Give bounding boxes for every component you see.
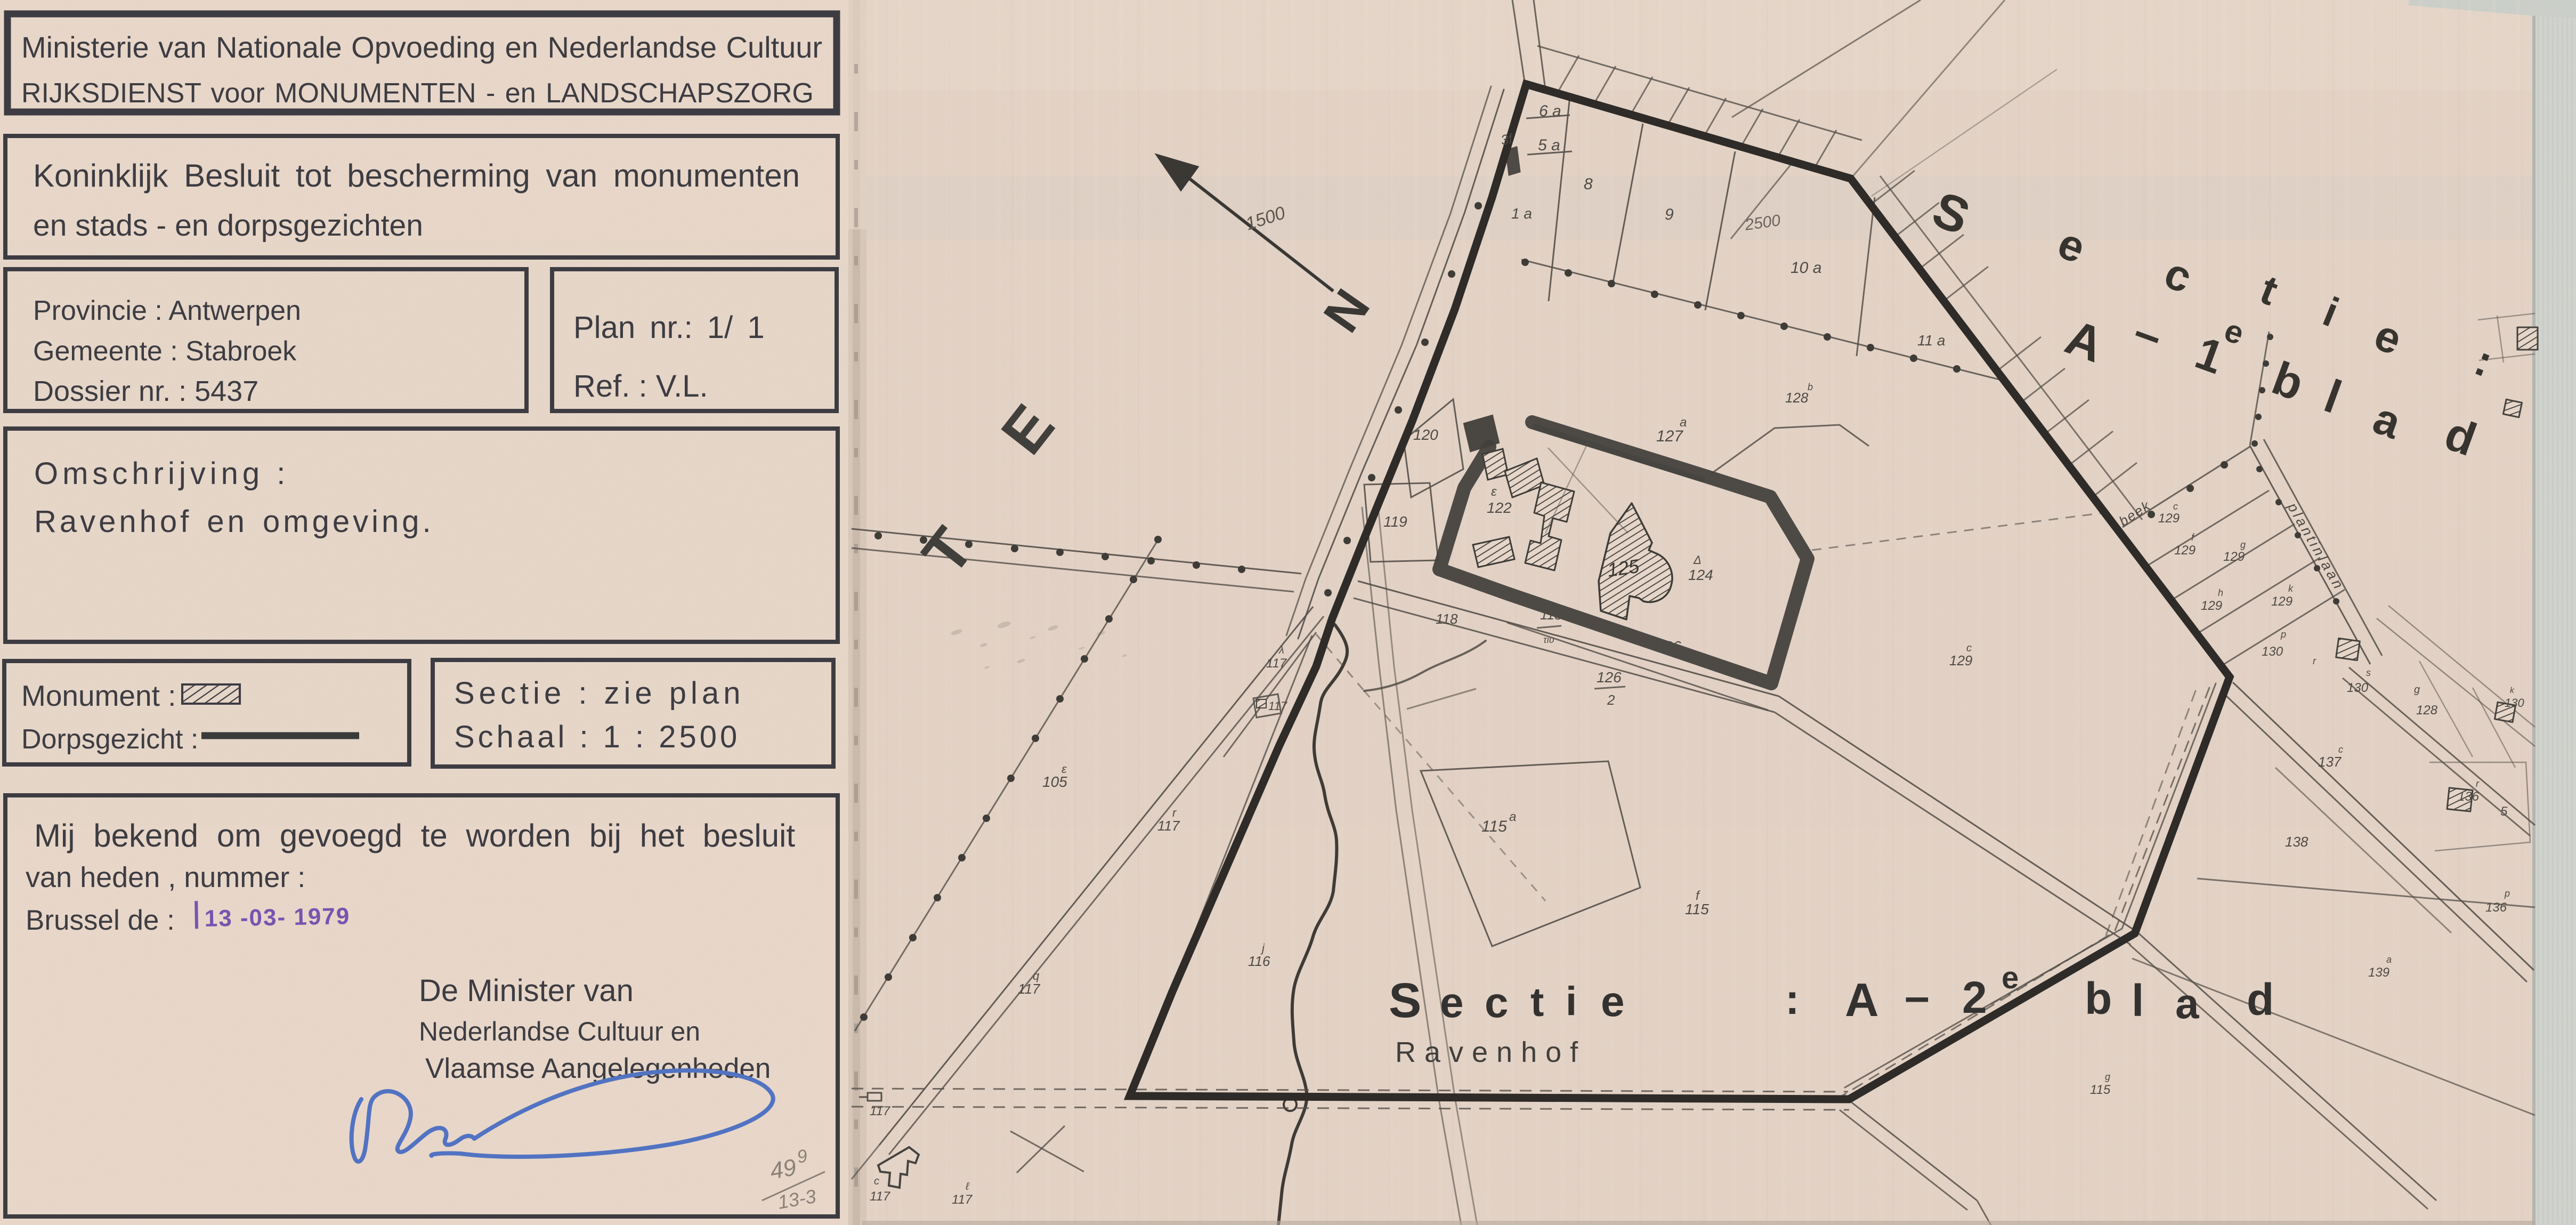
svg-text:r: r bbox=[2313, 656, 2316, 666]
svg-text:Ministerie van Nationale Opvoe: Ministerie van Nationale Opvoeding en Ne… bbox=[21, 30, 822, 64]
svg-text:Dossier nr. : 5437: Dossier nr. : 5437 bbox=[33, 375, 258, 407]
svg-text:115: 115 bbox=[1481, 818, 1507, 835]
svg-text:137: 137 bbox=[2318, 754, 2342, 770]
svg-text:5 a: 5 a bbox=[1538, 136, 1560, 154]
svg-text:129: 129 bbox=[2201, 599, 2222, 613]
svg-text:λ: λ bbox=[1278, 644, 1284, 656]
svg-text:b: b bbox=[2085, 973, 2112, 1023]
svg-text:t: t bbox=[1530, 980, 1544, 1025]
svg-text:117: 117 bbox=[952, 1192, 973, 1207]
svg-text:122: 122 bbox=[1487, 499, 1512, 516]
svg-text:117: 117 bbox=[870, 1104, 891, 1118]
svg-text:l: l bbox=[2132, 976, 2144, 1026]
svg-text:1 a: 1 a bbox=[1511, 205, 1532, 222]
svg-text:k: k bbox=[2510, 686, 2515, 695]
svg-text:118: 118 bbox=[1436, 611, 1458, 627]
svg-text:Monument :: Monument : bbox=[21, 679, 176, 712]
svg-text:en stads - en dorpsgezichten: en stads - en dorpsgezichten bbox=[33, 208, 423, 243]
svg-text:117: 117 bbox=[870, 1189, 891, 1204]
svg-text:125: 125 bbox=[1606, 555, 1641, 581]
svg-text:–: – bbox=[1905, 971, 1930, 1021]
svg-text:5: 5 bbox=[2500, 804, 2508, 819]
svg-text:d: d bbox=[2247, 974, 2274, 1025]
svg-text:117: 117 bbox=[1018, 981, 1041, 997]
svg-text:126: 126 bbox=[1656, 638, 1681, 655]
svg-text:Sectie : zie plan: Sectie : zie plan bbox=[454, 676, 744, 711]
svg-text:105: 105 bbox=[1042, 773, 1067, 790]
svg-text:124: 124 bbox=[1688, 567, 1713, 583]
svg-text:128: 128 bbox=[1785, 390, 1809, 406]
svg-text:e: e bbox=[2002, 961, 2019, 995]
svg-text:s: s bbox=[2366, 667, 2371, 678]
svg-text:Ravenhof: Ravenhof bbox=[1395, 1036, 1586, 1068]
svg-text:Plan nr.: 1/ 1: Plan nr.: 1/ 1 bbox=[573, 310, 765, 345]
svg-text:e: e bbox=[1601, 978, 1625, 1025]
svg-text:130: 130 bbox=[2262, 644, 2283, 659]
svg-text:g: g bbox=[2105, 1071, 2110, 1082]
svg-text:130: 130 bbox=[2347, 681, 2369, 695]
svg-text:136: 136 bbox=[2485, 900, 2507, 915]
svg-text:128: 128 bbox=[2416, 703, 2438, 718]
svg-text:c: c bbox=[874, 1175, 879, 1187]
svg-text:129: 129 bbox=[2223, 550, 2245, 564]
svg-text:k: k bbox=[2288, 583, 2294, 594]
svg-text:115: 115 bbox=[2090, 1083, 2111, 1097]
svg-text:2: 2 bbox=[1607, 692, 1615, 708]
svg-text:a: a bbox=[2175, 980, 2199, 1027]
svg-text:117: 117 bbox=[1266, 656, 1287, 671]
svg-text:c: c bbox=[1966, 642, 1972, 654]
svg-text:116: 116 bbox=[1248, 953, 1270, 969]
svg-text:119: 119 bbox=[1383, 513, 1407, 530]
svg-text:p: p bbox=[2504, 888, 2510, 899]
svg-text:i: i bbox=[1566, 979, 1577, 1024]
svg-text:Schaal : 1 : 2500: Schaal : 1 : 2500 bbox=[454, 720, 740, 754]
svg-text:Provincie : Antwerpen: Provincie : Antwerpen bbox=[33, 295, 301, 326]
svg-text:Nederlandse Cultuur en: Nederlandse Cultuur en bbox=[419, 1017, 700, 1046]
svg-text:117: 117 bbox=[1268, 699, 1287, 713]
svg-text:van heden , nummer :: van heden , nummer : bbox=[26, 861, 305, 893]
svg-text:129: 129 bbox=[1949, 652, 1972, 668]
svg-text:Δ: Δ bbox=[1693, 553, 1702, 567]
svg-text:Koninklijk Besluit tot bescher: Koninklijk Besluit tot bescherming van m… bbox=[33, 158, 800, 194]
svg-text:g: g bbox=[2414, 684, 2420, 696]
svg-text:p: p bbox=[2280, 629, 2286, 640]
svg-text:ε: ε bbox=[1062, 762, 1067, 776]
svg-text:130: 130 bbox=[2505, 696, 2524, 710]
svg-text:129: 129 bbox=[2158, 511, 2180, 526]
svg-text:118: 118 bbox=[1540, 607, 1562, 623]
svg-text:a: a bbox=[2386, 954, 2392, 965]
svg-text:S: S bbox=[1389, 973, 1421, 1028]
svg-text:e: e bbox=[1440, 979, 1464, 1026]
svg-text:Vlaamse Aangelegenheden: Vlaamse Aangelegenheden bbox=[425, 1053, 771, 1084]
svg-text:117: 117 bbox=[1157, 818, 1180, 834]
svg-text:RIJKSDIENST voor MONUMENTEN -: RIJKSDIENST voor MONUMENTEN - en LANDSCH… bbox=[21, 78, 814, 109]
svg-text:115: 115 bbox=[1685, 901, 1709, 917]
svg-text:c: c bbox=[2338, 744, 2343, 755]
svg-text:127: 127 bbox=[1656, 428, 1683, 445]
svg-text:De Minister van: De Minister van bbox=[419, 973, 634, 1008]
svg-text:ε: ε bbox=[1491, 485, 1497, 499]
svg-text:c: c bbox=[1485, 979, 1509, 1026]
svg-text:138: 138 bbox=[2285, 834, 2308, 850]
svg-text:A: A bbox=[1845, 973, 1879, 1026]
svg-text:136: 136 bbox=[2458, 789, 2480, 804]
svg-text:Dorpsgezicht :: Dorpsgezicht : bbox=[21, 724, 198, 755]
svg-text:Gemeente : Stabroek: Gemeente : Stabroek bbox=[33, 336, 297, 367]
svg-text:c: c bbox=[2173, 501, 2178, 512]
svg-text:a: a bbox=[1509, 810, 1516, 824]
svg-text:Mij bekend om gevoegd te worde: Mij bekend om gevoegd te worden bij het … bbox=[34, 818, 795, 853]
svg-text:2: 2 bbox=[1962, 972, 1987, 1022]
svg-text:126: 126 bbox=[1597, 669, 1622, 686]
svg-text:129: 129 bbox=[2271, 594, 2293, 609]
svg-text::: : bbox=[1785, 976, 1800, 1023]
svg-text:139: 139 bbox=[2368, 965, 2389, 980]
svg-text:Ravenhof en omgeving.: Ravenhof en omgeving. bbox=[34, 504, 434, 539]
svg-text:129: 129 bbox=[2174, 543, 2196, 558]
svg-text:a: a bbox=[1680, 415, 1687, 430]
svg-text:r: r bbox=[2476, 778, 2480, 789]
svg-text:120: 120 bbox=[1413, 426, 1438, 443]
svg-text:49: 49 bbox=[768, 1154, 798, 1184]
svg-text:b: b bbox=[1808, 382, 1813, 392]
svg-text:q: q bbox=[1033, 969, 1040, 982]
svg-text:h: h bbox=[2218, 587, 2223, 598]
svg-text:τιυ: τιυ bbox=[1543, 634, 1554, 645]
svg-text:10 a: 10 a bbox=[1791, 259, 1821, 277]
svg-text:9: 9 bbox=[1665, 206, 1674, 223]
svg-text:6 a: 6 a bbox=[1539, 102, 1561, 120]
svg-text:Omschrijving :: Omschrijving : bbox=[34, 456, 289, 491]
svg-text:11 a: 11 a bbox=[1917, 332, 1945, 349]
svg-text:g: g bbox=[2240, 539, 2246, 550]
svg-text:8: 8 bbox=[1584, 175, 1593, 193]
svg-text:Ref. : V.L.: Ref. : V.L. bbox=[573, 369, 708, 404]
svg-text:Brussel de :: Brussel de : bbox=[26, 905, 175, 936]
svg-text:13 -03- 1979: 13 -03- 1979 bbox=[204, 903, 350, 932]
